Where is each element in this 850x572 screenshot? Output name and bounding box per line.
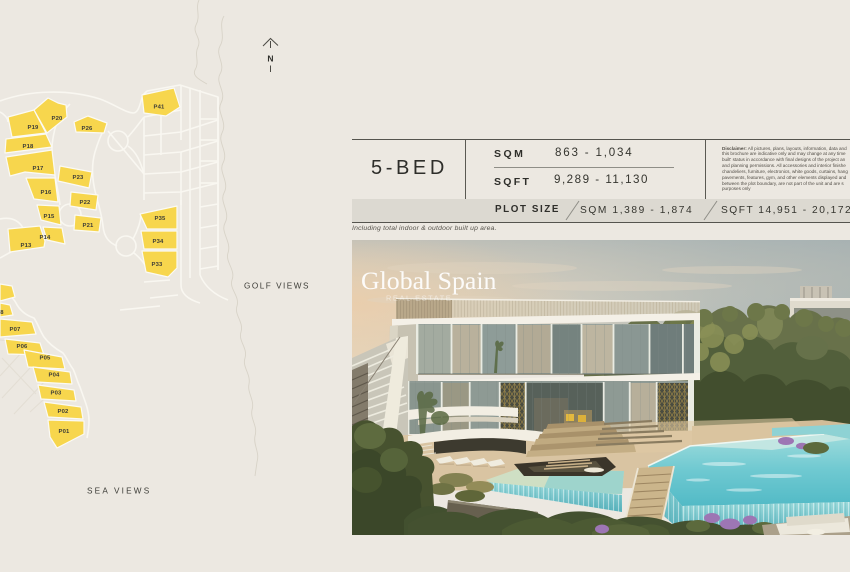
svg-text:P13: P13	[20, 243, 32, 249]
svg-text:P33: P33	[151, 262, 163, 268]
svg-text:8: 8	[0, 310, 4, 316]
svg-text:P26: P26	[81, 126, 93, 132]
svg-text:P18: P18	[22, 144, 34, 150]
svg-text:P17: P17	[32, 166, 44, 172]
svg-text:N: N	[267, 54, 273, 64]
svg-text:P06: P06	[16, 344, 28, 350]
svg-text:P02: P02	[57, 409, 69, 415]
svg-text:P19: P19	[27, 125, 39, 131]
svg-text:P01: P01	[58, 429, 70, 435]
svg-text:SEA VIEWS: SEA VIEWS	[87, 487, 151, 496]
svg-text:P20: P20	[51, 116, 63, 122]
svg-text:P05: P05	[39, 356, 51, 362]
svg-text:P22: P22	[79, 200, 91, 206]
svg-text:P23: P23	[72, 175, 84, 181]
svg-text:P03: P03	[50, 391, 62, 397]
svg-text:P35: P35	[154, 216, 166, 222]
svg-text:P04: P04	[48, 373, 60, 379]
svg-text:P16: P16	[40, 190, 52, 196]
svg-text:P21: P21	[82, 223, 94, 229]
svg-text:P14: P14	[39, 235, 51, 241]
svg-text:P41: P41	[153, 105, 165, 111]
svg-text:Global Spain: Global Spain	[361, 266, 497, 295]
svg-text:P07: P07	[9, 327, 21, 333]
svg-text:GOLF VIEWS: GOLF VIEWS	[244, 282, 310, 291]
svg-text:P15: P15	[43, 214, 55, 220]
svg-text:REAL ESTATE: REAL ESTATE	[386, 294, 452, 303]
svg-text:P34: P34	[152, 239, 164, 245]
